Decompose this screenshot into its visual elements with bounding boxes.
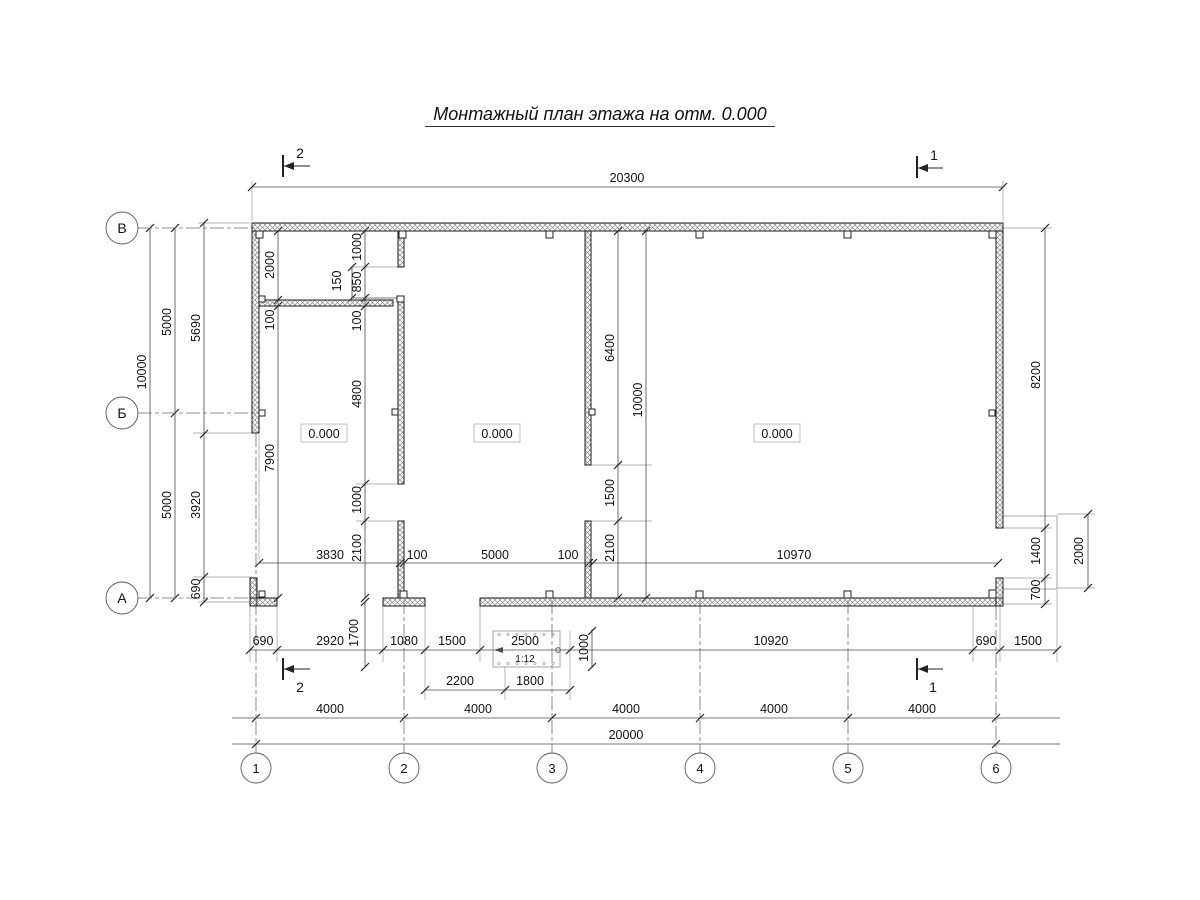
wall-panel — [585, 521, 591, 598]
dimension-label: 5000 — [481, 548, 509, 562]
column-mark — [392, 409, 398, 415]
dimension-label: 4000 — [908, 702, 936, 716]
section-mark-label-1: 1 — [929, 679, 937, 695]
axis-label-Б: Б — [117, 405, 126, 421]
dimension-label: 3830 — [316, 548, 344, 562]
axis-label-5: 5 — [844, 761, 851, 776]
axis-label-2: 2 — [400, 761, 407, 776]
level-label: 0.000 — [481, 427, 512, 441]
column-mark — [256, 231, 263, 238]
dimension-label: 10000 — [631, 383, 645, 418]
dimension-label: 6400 — [603, 334, 617, 362]
axis-label-А: А — [117, 590, 127, 606]
section-mark-arrow-2 — [284, 665, 294, 673]
axis-label-1: 1 — [252, 761, 259, 776]
column-mark — [259, 591, 265, 597]
dimension-label: 2000 — [1072, 537, 1086, 565]
wall-panel — [398, 521, 404, 598]
column-mark — [259, 410, 265, 416]
dimension-label: 1500 — [1014, 634, 1042, 648]
wall-panel — [480, 598, 1003, 606]
axis-label-6: 6 — [992, 761, 999, 776]
dimension-label: 20000 — [609, 728, 644, 742]
dimension-label: 10920 — [754, 634, 789, 648]
dimension-label: 1800 — [516, 674, 544, 688]
dimension-label: 1700 — [347, 619, 361, 647]
wall-panel — [252, 231, 259, 433]
ramp-dot — [507, 662, 509, 664]
dimension-label: 5000 — [160, 491, 174, 519]
dimension-label: 1400 — [1029, 537, 1043, 565]
column-mark — [696, 231, 703, 238]
section-mark-arrow-1 — [918, 164, 928, 172]
axis-label-3: 3 — [548, 761, 555, 776]
ramp-dot — [498, 633, 500, 635]
floor-plan-canvas: 123456ВБА2030038301005000100109706902920… — [0, 0, 1200, 900]
wall-panel — [585, 231, 591, 465]
wall-panel — [250, 598, 277, 606]
axis-label-4: 4 — [696, 761, 703, 776]
dimension-label: 3920 — [189, 491, 203, 519]
dimension-label: 2100 — [603, 534, 617, 562]
wall-panel — [383, 598, 425, 606]
section-mark-arrow-2 — [284, 162, 294, 170]
dimension-label: 2920 — [316, 634, 344, 648]
ramp-dot — [498, 662, 500, 664]
dimension-label: 1:12 — [515, 654, 535, 665]
dimension-label: 150 — [330, 271, 344, 292]
dimension-label: 1000 — [350, 233, 364, 261]
section-mark-arrow-1 — [918, 665, 928, 673]
dimension-label: 2200 — [446, 674, 474, 688]
column-mark — [989, 410, 995, 416]
column-mark — [989, 231, 996, 238]
wall-panel — [398, 296, 404, 484]
dimension-label: 7900 — [263, 444, 277, 472]
dimension-label: 700 — [1029, 580, 1043, 601]
wall-panel — [259, 300, 393, 306]
axis-label-В: В — [117, 220, 126, 236]
dimension-label: 850 — [350, 272, 364, 293]
column-mark — [546, 591, 553, 598]
dimension-label: 4000 — [464, 702, 492, 716]
column-mark — [844, 231, 851, 238]
ramp-dot — [507, 633, 509, 635]
dimension-label: 1080 — [390, 634, 418, 648]
column-mark — [696, 591, 703, 598]
section-mark-label-2: 2 — [296, 679, 304, 695]
ramp-dot — [543, 662, 545, 664]
level-label: 0.000 — [761, 427, 792, 441]
dimension-label: 1000 — [350, 486, 364, 514]
dimension-label: 10970 — [777, 548, 812, 562]
dimension-label: 20300 — [610, 171, 645, 185]
column-mark — [399, 231, 406, 238]
dimension-label: 1500 — [438, 634, 466, 648]
dimension-label: 4000 — [612, 702, 640, 716]
wall-panel — [996, 231, 1003, 528]
dimension-label: 8200 — [1029, 361, 1043, 389]
dimension-label: 690 — [253, 634, 274, 648]
dimension-label: 4000 — [316, 702, 344, 716]
ramp-dot — [552, 662, 554, 664]
level-label: 0.000 — [308, 427, 339, 441]
dimension-label: 1500 — [603, 479, 617, 507]
drawing-sheet: Монтажный план этажа на отм. 0.000 12345… — [0, 0, 1200, 900]
dimension-label: 690 — [189, 579, 203, 600]
dimension-label: 4000 — [760, 702, 788, 716]
section-mark-label-2: 2 — [296, 145, 304, 161]
dimension-label: 100 — [263, 310, 277, 331]
column-mark — [397, 296, 404, 302]
column-mark — [989, 590, 996, 598]
dimension-label: 5690 — [189, 314, 203, 342]
wall-panel — [996, 578, 1003, 606]
dimension-label: 100 — [558, 548, 579, 562]
dimension-label: 5000 — [160, 308, 174, 336]
section-mark-label-1: 1 — [930, 147, 938, 163]
column-mark — [400, 591, 407, 598]
dimension-label: 10000 — [135, 355, 149, 390]
column-mark — [259, 296, 265, 302]
dimension-label: 2000 — [263, 251, 277, 279]
dimension-label: 690 — [976, 634, 997, 648]
column-mark — [546, 231, 553, 238]
dimension-label: 1000 — [577, 634, 591, 662]
dimension-label: 2100 — [350, 534, 364, 562]
dimension-label: 100 — [350, 311, 364, 332]
ramp-dot — [543, 633, 545, 635]
column-mark — [589, 409, 595, 415]
dimension-label: 100 — [407, 548, 428, 562]
dimension-label: 4800 — [350, 380, 364, 408]
column-mark — [844, 591, 851, 598]
dimension-label: 2500 — [511, 634, 539, 648]
wall-panel — [252, 223, 1003, 231]
